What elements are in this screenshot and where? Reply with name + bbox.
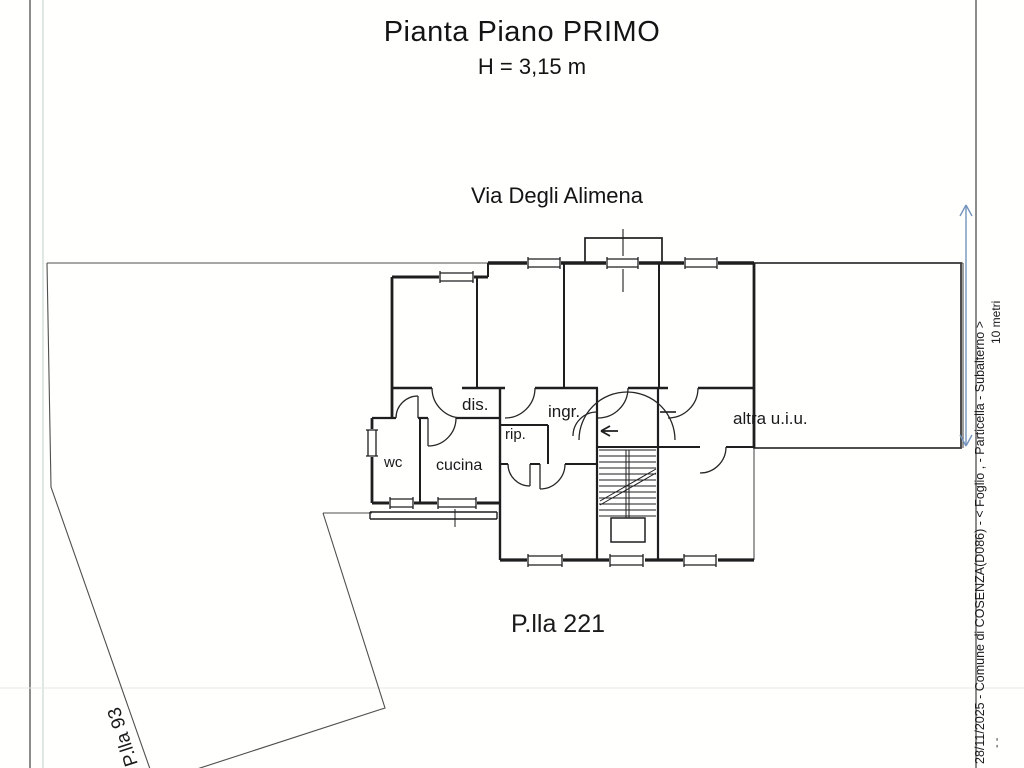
door-arc <box>700 447 726 473</box>
window-symbol <box>527 256 561 269</box>
room-label-cucina: cucina <box>436 457 482 474</box>
door-arc <box>428 418 456 446</box>
room-label-dis: dis. <box>462 395 488 414</box>
left-parcel-boundary <box>47 263 150 768</box>
scan-borders <box>0 0 1024 768</box>
door-arc <box>540 464 565 489</box>
stair-treads <box>599 450 656 516</box>
scan-mark: - - <box>991 737 1003 748</box>
window-symbol <box>606 256 639 269</box>
window-symbol <box>527 553 563 567</box>
entry-direction-arrow <box>601 426 618 436</box>
door-arc <box>668 388 698 418</box>
window-symbol <box>389 496 414 509</box>
window-symbol <box>609 553 645 567</box>
window-symbol <box>684 256 718 269</box>
door-arc <box>505 388 535 418</box>
plan-labels: dis. ingr. rip. wc cucina altra u.i.u. P… <box>104 301 1003 768</box>
door-arc <box>508 464 530 486</box>
parcel-label-221: P.lla 221 <box>511 610 605 638</box>
scanned-floorplan-page: Pianta Piano PRIMO H = 3,15 m Via Degli … <box>0 0 1024 768</box>
door-arc <box>396 396 418 418</box>
window-symbol <box>439 270 474 283</box>
stair-center-rail <box>626 450 629 518</box>
parcel-boundary-lines <box>47 263 963 768</box>
window-symbol <box>366 429 379 457</box>
staircase <box>599 426 656 542</box>
window-symbol <box>683 553 718 567</box>
entry-door-leaf-arc <box>627 392 675 440</box>
room-label-rip: rip. <box>505 426 526 443</box>
room-label-ingr: ingr. <box>548 402 580 421</box>
bottom-parcel-boundary <box>197 513 385 768</box>
window-symbol <box>437 496 477 509</box>
cadastral-side-caption: 28/11/2025 - Comune di COSENZA(D086) - <… <box>973 321 987 764</box>
parcel-label-93: P.lla 93 <box>104 704 143 768</box>
room-label-altra-uiu: altra u.i.u. <box>733 409 808 428</box>
door-arc <box>432 388 462 418</box>
stair-lower-flight <box>611 518 645 542</box>
room-label-wc: wc <box>383 454 403 471</box>
scale-bar-label: 10 metri <box>989 301 1003 344</box>
floorplan-drawing: dis. ingr. rip. wc cucina altra u.i.u. P… <box>0 0 1024 768</box>
